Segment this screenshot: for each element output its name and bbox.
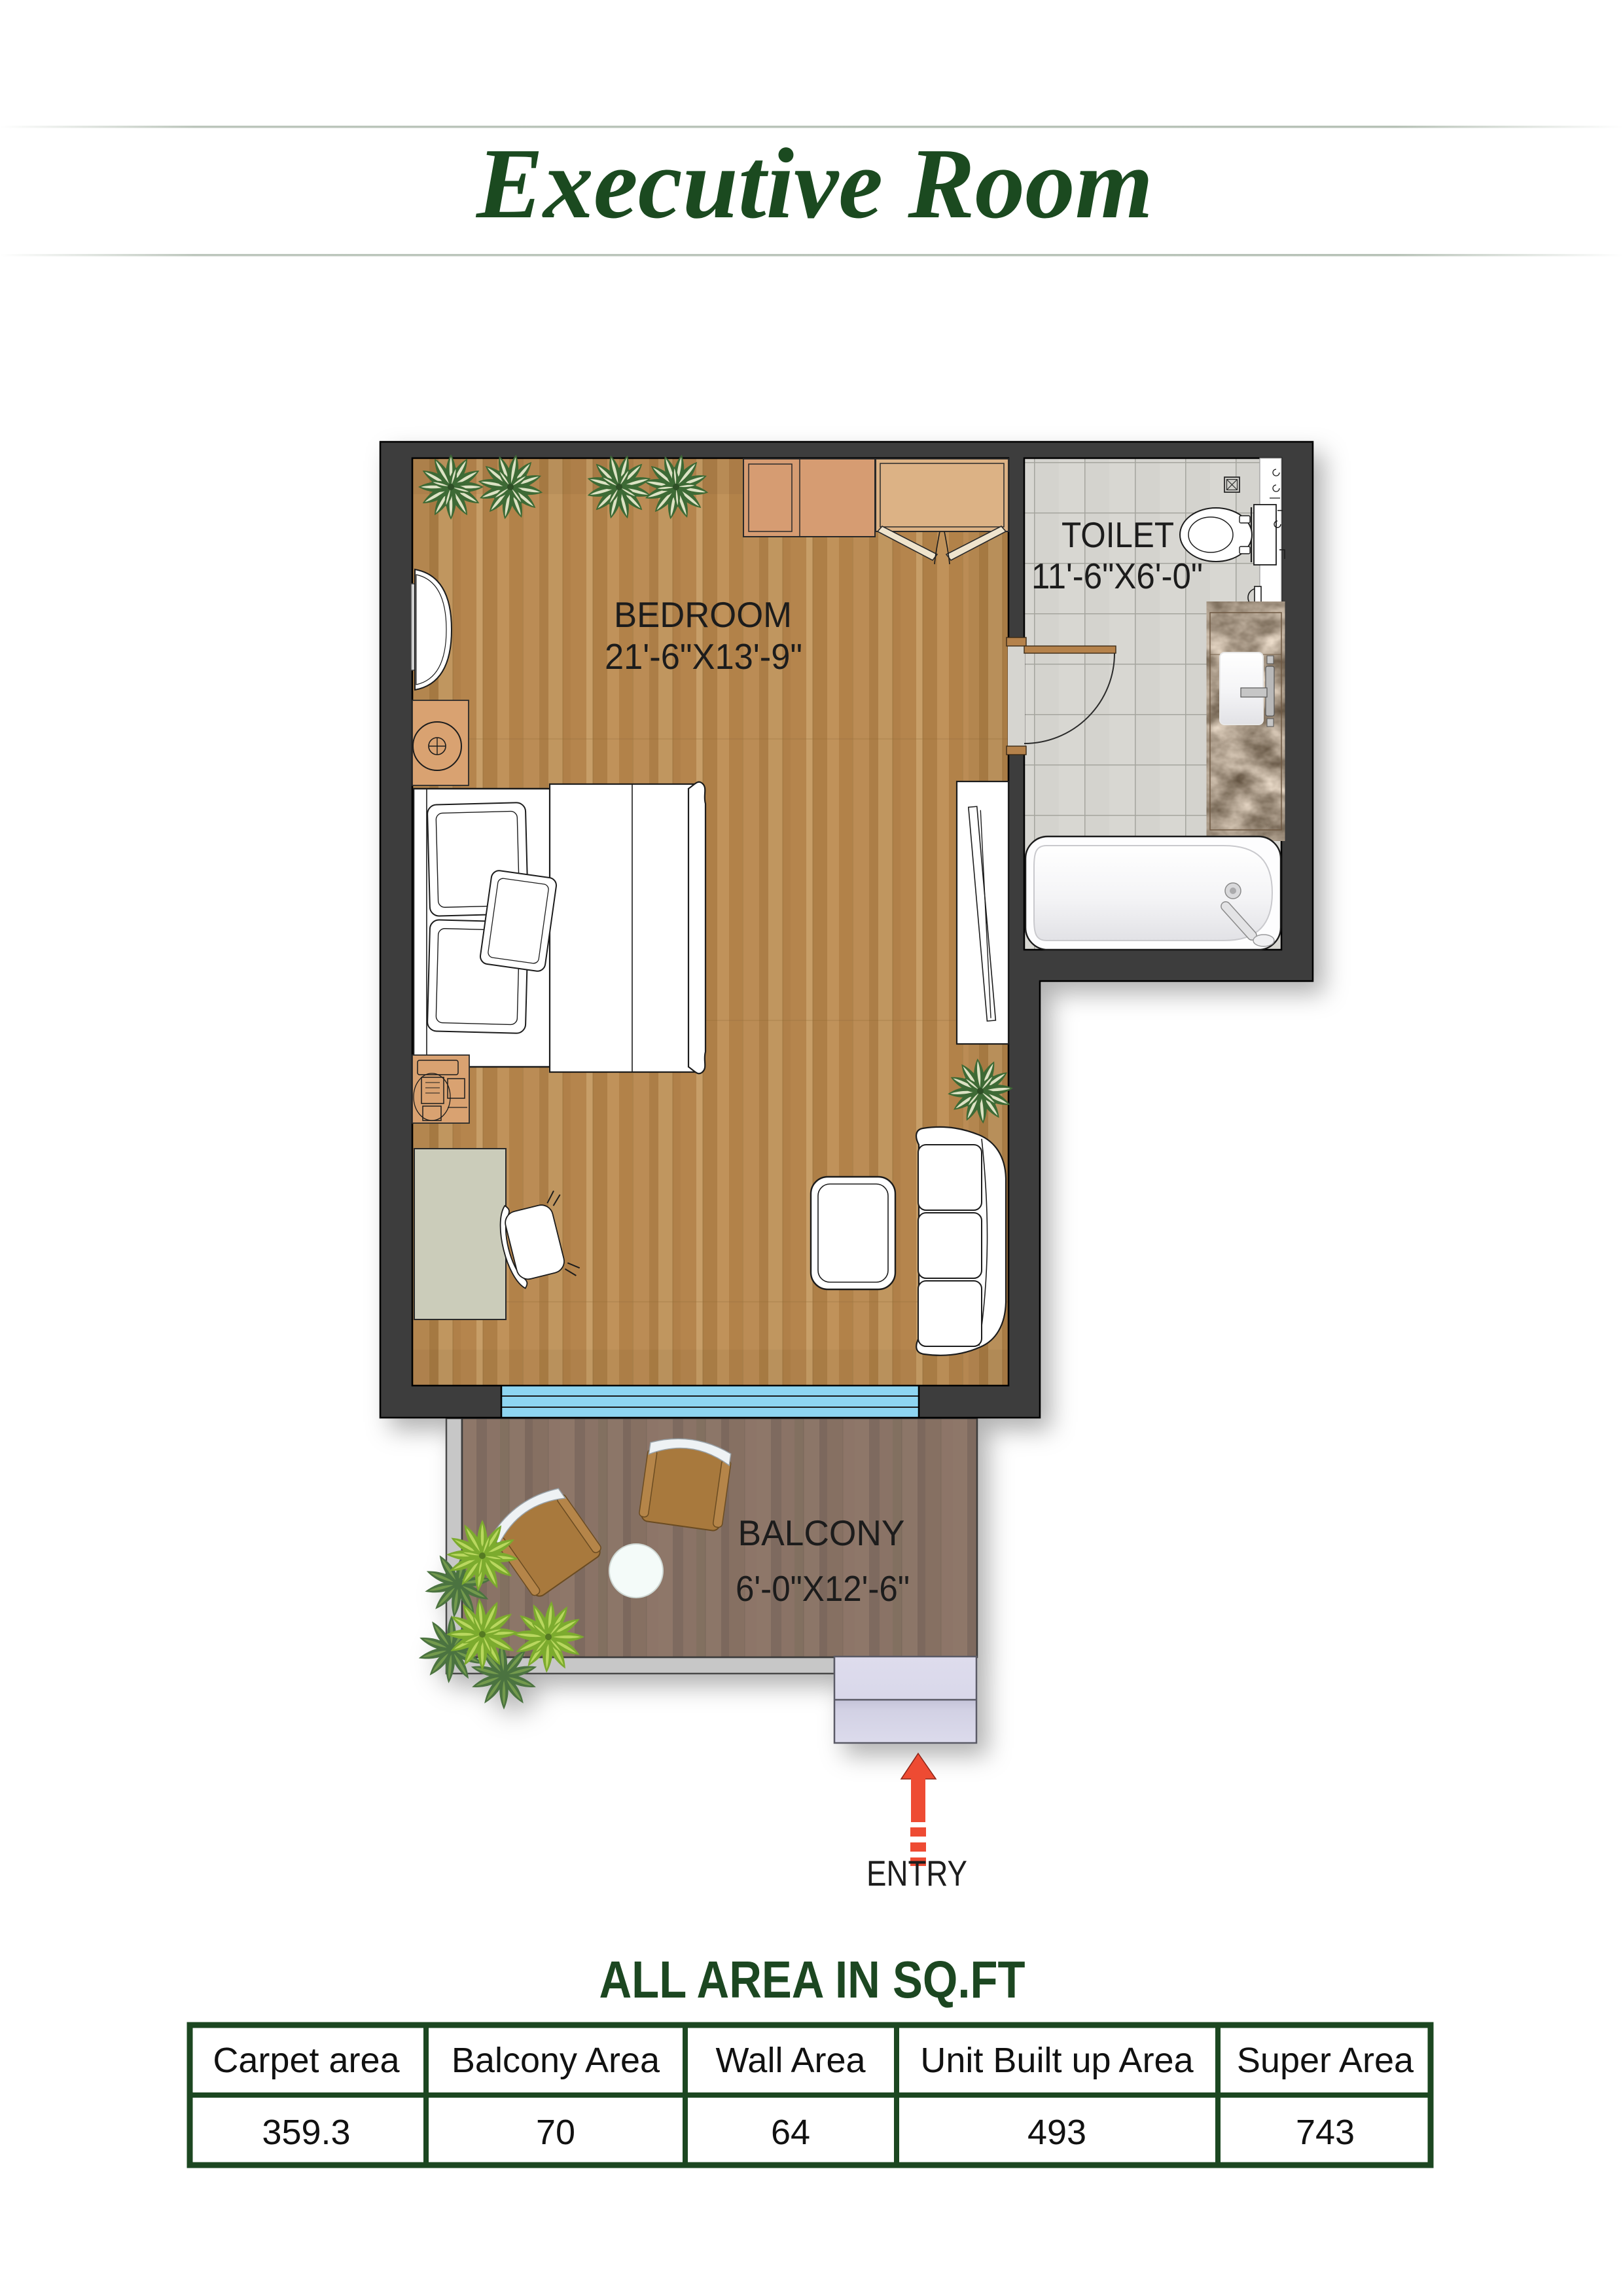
svg-text:70: 70 xyxy=(536,2113,575,2152)
svg-text:359.3: 359.3 xyxy=(262,2113,350,2152)
svg-text:Balcony Area: Balcony Area xyxy=(452,2041,660,2080)
svg-text:BEDROOM: BEDROOM xyxy=(614,594,792,635)
svg-text:6'-0"X12'-6": 6'-0"X12'-6" xyxy=(736,1568,910,1609)
svg-text:Unit Built up Area: Unit Built up Area xyxy=(920,2041,1194,2080)
svg-text:ALL AREA IN SQ.FT: ALL AREA IN SQ.FT xyxy=(599,1950,1026,2009)
svg-text:64: 64 xyxy=(771,2113,810,2152)
svg-text:Super Area: Super Area xyxy=(1237,2041,1414,2080)
svg-text:11'-6"X6'-0": 11'-6"X6'-0" xyxy=(1031,556,1203,596)
svg-text:Wall Area: Wall Area xyxy=(715,2041,866,2080)
svg-text:493: 493 xyxy=(1027,2113,1086,2152)
svg-text:ENTRY: ENTRY xyxy=(866,1853,967,1893)
svg-text:Executive Room: Executive Room xyxy=(475,128,1153,240)
svg-text:743: 743 xyxy=(1296,2113,1355,2152)
svg-text:TOILET: TOILET xyxy=(1061,514,1174,555)
svg-text:Carpet area: Carpet area xyxy=(213,2041,400,2080)
svg-text:BALCONY: BALCONY xyxy=(738,1513,905,1553)
svg-text:21'-6"X13'-9": 21'-6"X13'-9" xyxy=(605,636,802,677)
